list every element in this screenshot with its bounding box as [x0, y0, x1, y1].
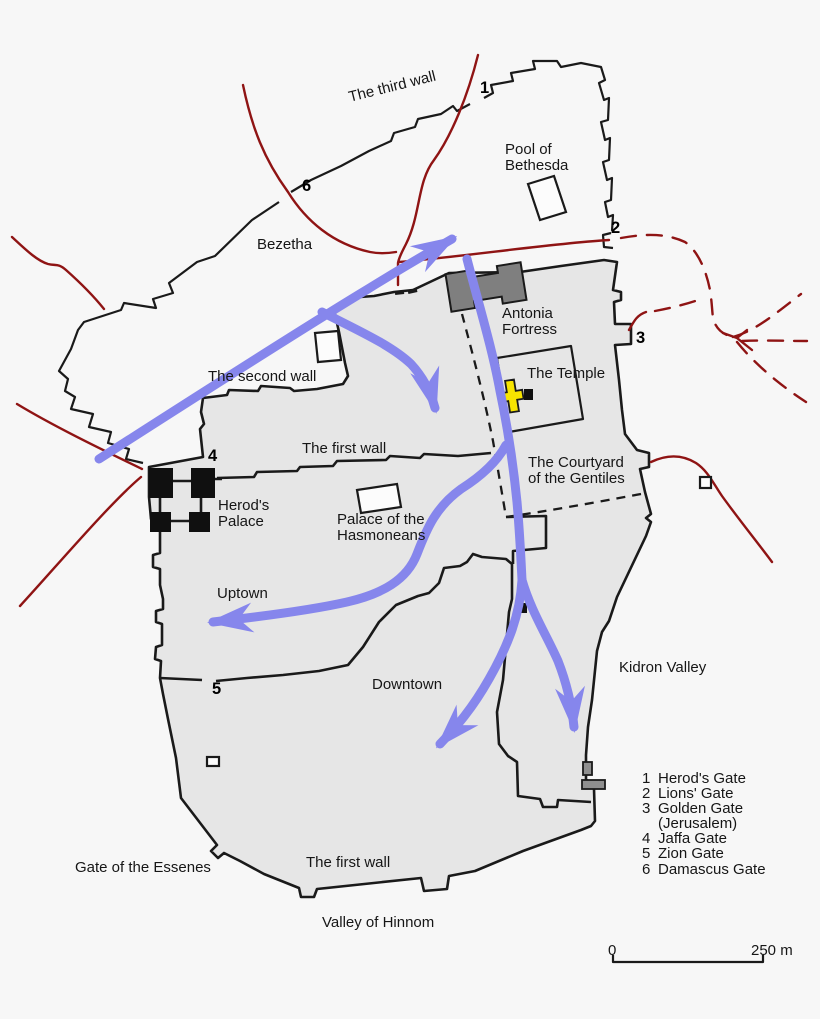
east-wall-tower — [583, 762, 592, 775]
label-first-wall-north: The first wall — [302, 441, 386, 457]
legend-gate-number: 3 — [642, 801, 658, 816]
gate-marker-1-herods-gate: 1 — [480, 79, 489, 98]
kidron-road-dashed — [621, 235, 733, 337]
scale-start-label: 0 — [608, 942, 616, 959]
legend-gate-name: (Jerusalem) — [658, 816, 737, 831]
jerusalem-map: The third wall Bezetha The second wall T… — [0, 0, 820, 1019]
label-palace-of-hasmoneans: Palace of the Hasmoneans — [337, 512, 425, 543]
legend-gate-name: Damascus Gate — [658, 862, 766, 877]
label-first-wall-south: The first wall — [306, 855, 390, 871]
gate-marker-4-jaffa-gate: 4 — [208, 447, 217, 466]
label-the-temple: The Temple — [527, 366, 605, 382]
label-downtown: Downtown — [372, 677, 442, 693]
label-uptown: Uptown — [217, 586, 268, 602]
legend-gate-name: Herod's Gate — [658, 771, 746, 786]
gate-legend: 1 Herod's Gate 2 Lions' Gate 3 Golden Ga… — [642, 771, 766, 877]
legend-gate-number — [642, 816, 658, 831]
gate-marker-2-lions-gate: 2 — [611, 219, 620, 238]
temple-altar-marker — [524, 389, 533, 400]
herods-palace-tower-se — [189, 512, 210, 532]
label-courtyard-of-gentiles: The Courtyard of the Gentiles — [528, 455, 625, 486]
legend-row: 6 Damascus Gate — [642, 862, 766, 877]
label-valley-of-hinnom: Valley of Hinnom — [322, 915, 434, 931]
road-southeast-curve — [651, 456, 772, 562]
hinnom-valley-line-lower — [20, 477, 141, 606]
road-branch-lower-dashed — [737, 342, 806, 402]
southeast-gate-structure — [582, 780, 605, 789]
legend-row: 2 Lions' Gate — [642, 786, 766, 801]
herods-palace-tower-nw — [149, 468, 173, 498]
label-herods-palace: Herod's Palace — [218, 498, 269, 529]
legend-row: 1 Herod's Gate — [642, 771, 766, 786]
legend-row: 4 Jaffa Gate — [642, 831, 766, 846]
road-through-bezetha — [243, 85, 396, 253]
scale-end-label: 250 m — [751, 942, 793, 959]
label-second-wall: The second wall — [208, 369, 316, 385]
herods-palace-tower-sw — [150, 512, 171, 532]
legend-gate-number: 5 — [642, 846, 658, 861]
label-antonia-fortress: Antonia Fortress — [502, 306, 557, 337]
label-gate-of-the-essenes: Gate of the Essenes — [75, 860, 211, 876]
gate-marker-3-golden-gate: 3 — [636, 329, 645, 348]
legend-gate-number: 4 — [642, 831, 658, 846]
label-pool-of-bethesda: Pool of Bethesda — [505, 142, 568, 173]
label-bezetha: Bezetha — [257, 237, 312, 253]
legend-gate-name: Zion Gate — [658, 846, 724, 861]
road-from-golden-gate — [629, 312, 646, 330]
legend-gate-name: Golden Gate — [658, 801, 743, 816]
legend-gate-name: Lions' Gate — [658, 786, 733, 801]
legend-gate-number: 6 — [642, 862, 658, 877]
gate-marker-5-zion-gate: 5 — [212, 680, 221, 699]
kidron-monument-marker — [700, 477, 711, 488]
legend-gate-name: Jaffa Gate — [658, 831, 727, 846]
uptown-structure-marker — [207, 757, 219, 766]
legend-gate-number: 1 — [642, 771, 658, 786]
pool-of-bethesda-shape — [528, 176, 566, 220]
label-kidron-valley: Kidron Valley — [619, 660, 706, 676]
herods-palace-tower-ne — [191, 468, 215, 498]
hinnom-valley-line-upper — [17, 404, 142, 469]
gate-marker-6-damascus-gate: 6 — [302, 177, 311, 196]
second-wall-corner-tower — [315, 331, 341, 362]
road-branch-upper-dashed — [733, 294, 801, 337]
legend-row: (Jerusalem) — [642, 816, 766, 831]
scale-bar — [613, 955, 763, 962]
legend-row: 3 Golden Gate — [642, 801, 766, 816]
palace-of-hasmoneans-shape — [357, 484, 401, 513]
legend-gate-number: 2 — [642, 786, 658, 801]
legend-row: 5 Zion Gate — [642, 846, 766, 861]
road-northwest — [12, 237, 104, 309]
road-from-golden-gate-dashed — [655, 299, 701, 311]
